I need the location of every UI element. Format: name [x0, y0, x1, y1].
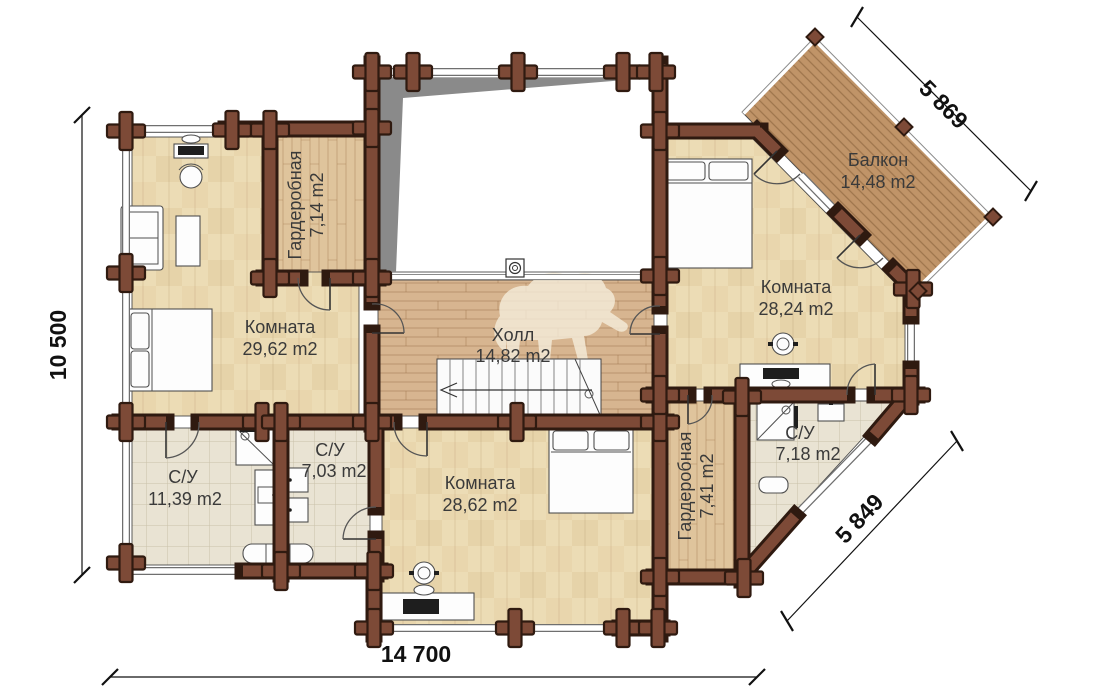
dimension-bottom: 14 700: [102, 641, 765, 685]
bath-right-area: 7,18 m2: [775, 444, 840, 464]
svg-text:10 500: 10 500: [45, 310, 71, 380]
bench-right: [759, 477, 788, 493]
balcony-area: 14,48 m2: [840, 172, 915, 192]
bed-left: [128, 309, 212, 391]
floor-plan-page: Комната 29,62 m2 Гардеробная 7,14 m2 Хол…: [0, 0, 1100, 700]
room-bottom-name: Комната: [445, 473, 516, 493]
chimney-vent: [506, 259, 524, 277]
floor-plan: Комната 29,62 m2 Гардеробная 7,14 m2 Хол…: [0, 0, 1100, 700]
room-left-area: 29,62 m2: [242, 339, 317, 359]
bath-left-area: 11,39 m2: [148, 489, 222, 509]
wardrobe-bottom-area: 7,41 m2: [697, 453, 717, 518]
bath-mid-area: 7,03 m2: [301, 461, 366, 481]
room-bottom-area: 28,62 m2: [442, 495, 517, 515]
wardrobe-top-area: 7,14 m2: [307, 172, 327, 237]
svg-text:5 849: 5 849: [830, 489, 888, 549]
room-left-name: Комната: [245, 317, 316, 337]
bath-left-name: С/У: [168, 467, 198, 487]
bath-mid-name: С/У: [315, 440, 345, 460]
bed-bottom: [549, 428, 633, 513]
balcony-name: Балкон: [848, 150, 908, 170]
void-floor: [379, 78, 653, 272]
coffee-table: [176, 216, 200, 266]
desk-right: [740, 364, 830, 390]
svg-text:14 700: 14 700: [381, 641, 451, 667]
wardrobe-bottom-name: Гардеробная: [675, 432, 695, 541]
dimension-left: 10 500: [45, 107, 90, 583]
room-right-area: 28,24 m2: [758, 299, 833, 319]
bath-right-name: С/У: [785, 423, 815, 443]
room-right-name: Комната: [761, 277, 832, 297]
bed-right: [663, 159, 752, 268]
hall-name: Холл: [492, 325, 534, 345]
hall-area: 14,82 m2: [475, 346, 550, 366]
wardrobe-top-name: Гардеробная: [285, 151, 305, 260]
